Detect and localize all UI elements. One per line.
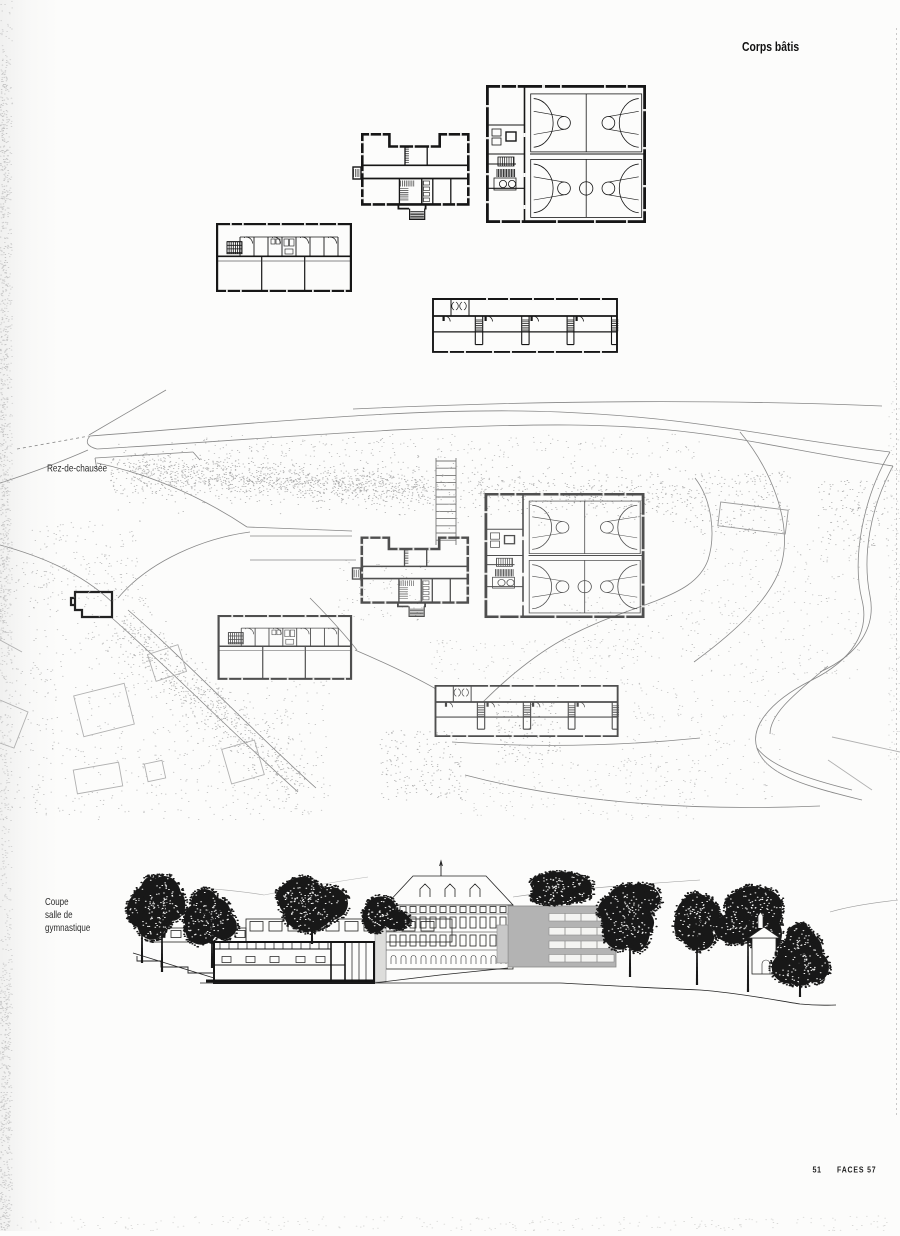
svg-text:FACES 57: FACES 57 [837,1165,876,1175]
svg-text:Coupe: Coupe [45,896,69,907]
svg-text:Rez-de-chausée: Rez-de-chausée [47,463,107,474]
svg-text:51: 51 [813,1165,822,1175]
svg-text:salle de: salle de [45,909,73,920]
svg-text:Corps bâtis: Corps bâtis [742,40,800,54]
svg-text:gymnastique: gymnastique [45,922,90,933]
